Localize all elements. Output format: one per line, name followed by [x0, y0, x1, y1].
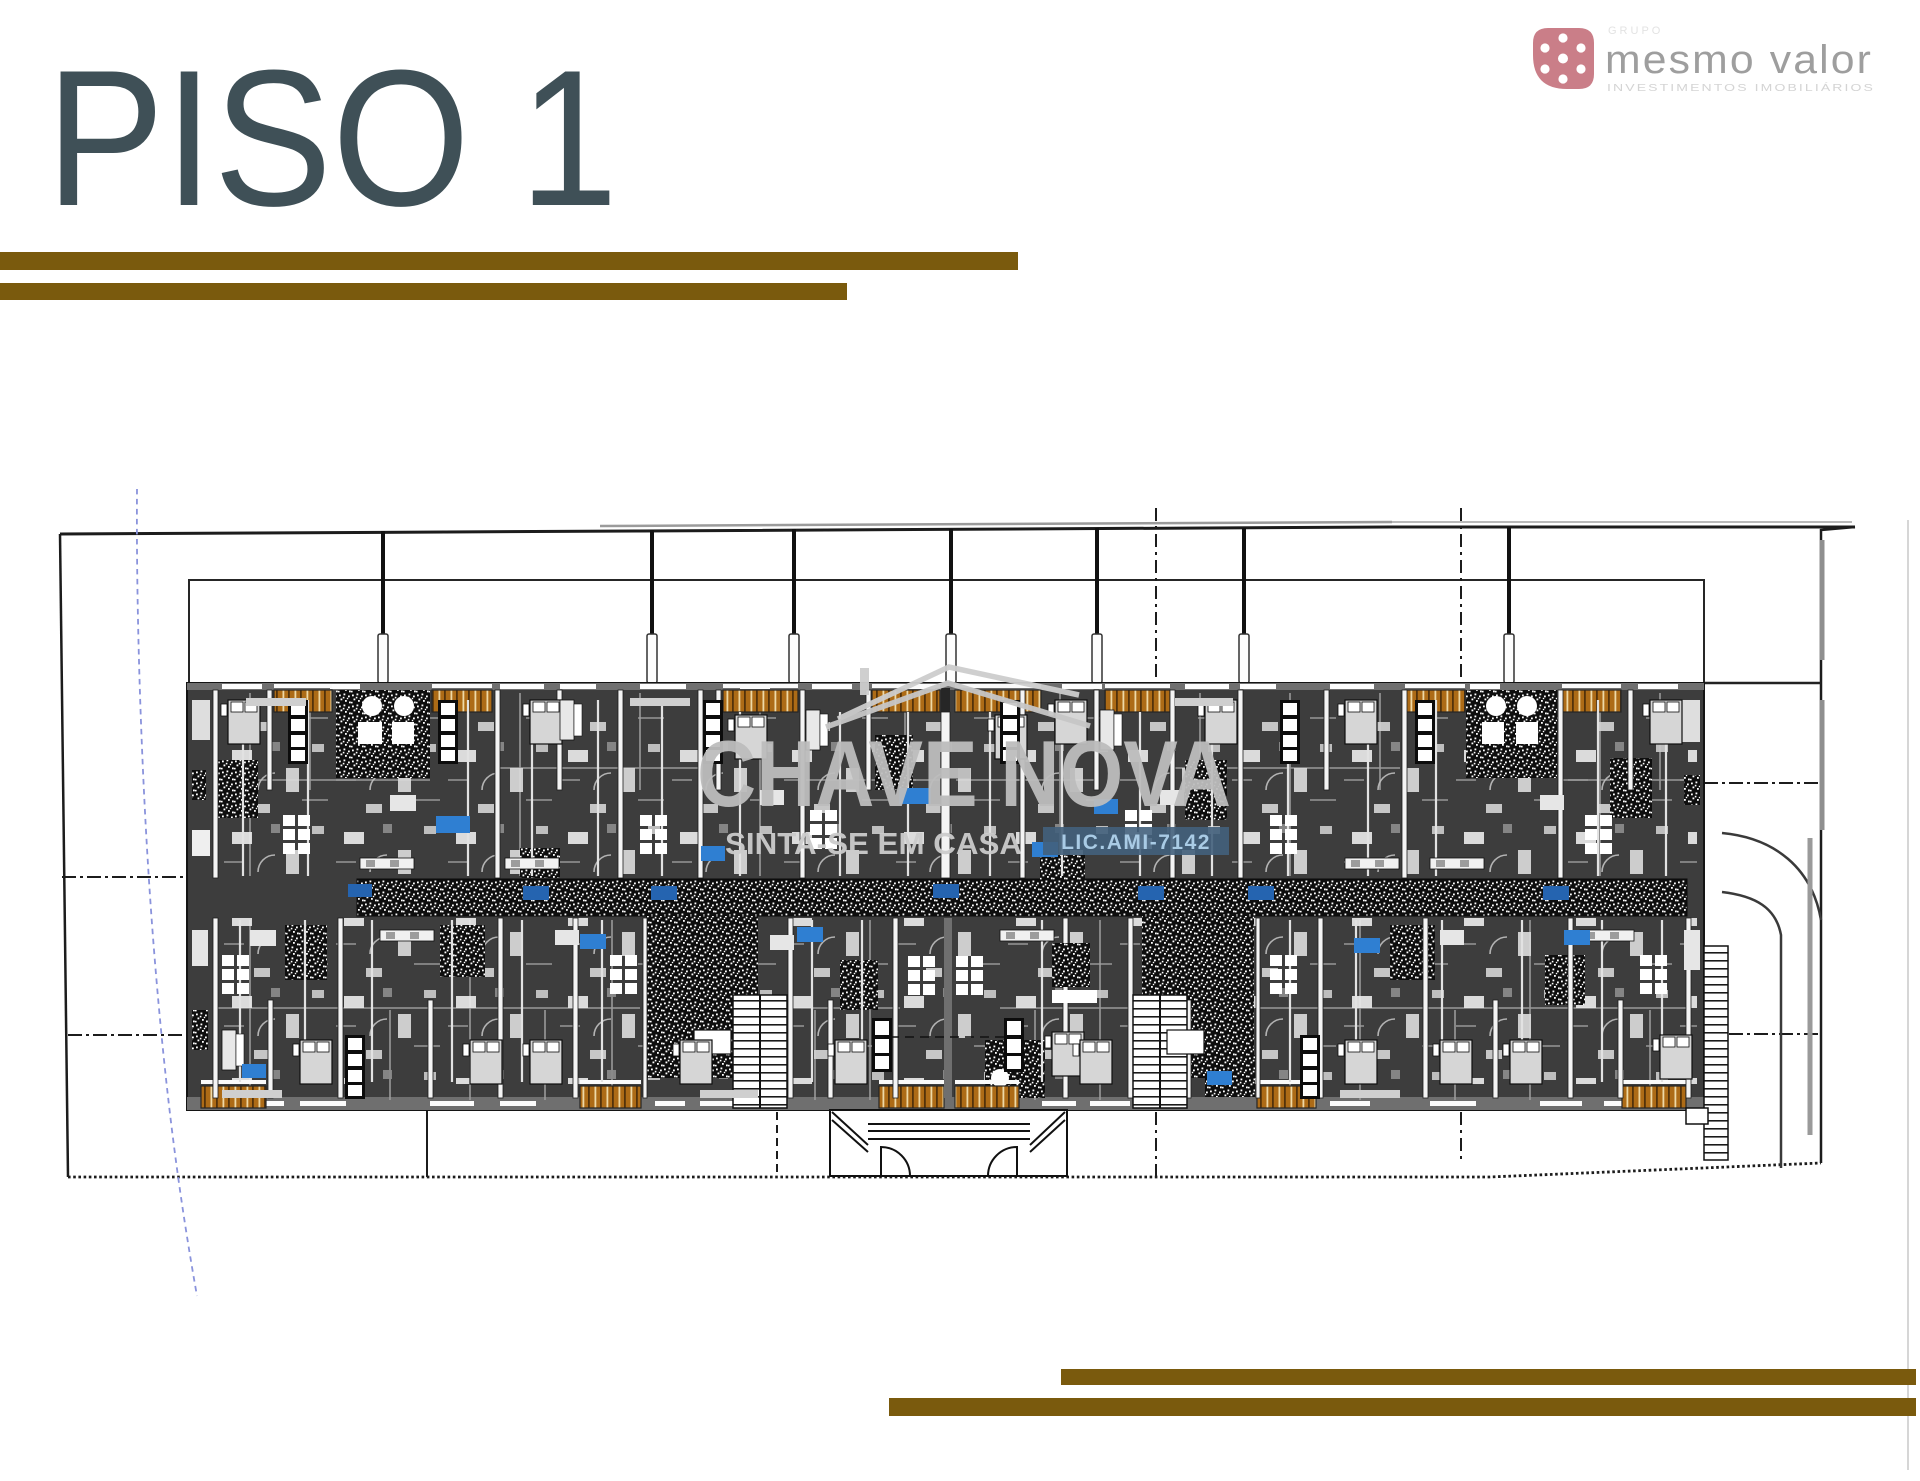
- svg-text:LIC.AMI-7142: LIC.AMI-7142: [1061, 831, 1211, 854]
- svg-text:CHAVE NOVA: CHAVE NOVA: [697, 721, 1231, 826]
- svg-text:PISO 1: PISO 1: [46, 30, 618, 247]
- svg-text:SINTA-SE EM CASA: SINTA-SE EM CASA: [725, 826, 1022, 861]
- svg-text:INVESTIMENTOS IMOBILIÁRIOS: INVESTIMENTOS IMOBILIÁRIOS: [1607, 81, 1875, 94]
- svg-text:mesmo valor: mesmo valor: [1605, 38, 1873, 82]
- svg-text:GRUPO: GRUPO: [1608, 25, 1663, 37]
